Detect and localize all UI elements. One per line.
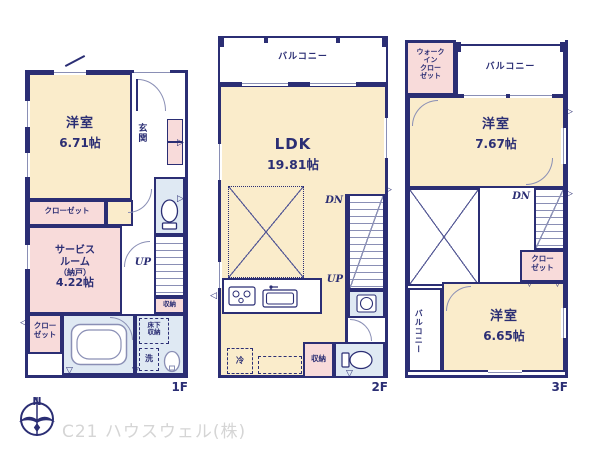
window-2f-balcony-2 — [310, 81, 356, 86]
balcony-3f-post-right — [560, 42, 565, 52]
closet-bottom-left-label: クロー ゼット — [28, 322, 62, 339]
ldk-size: 19.81帖 — [238, 158, 348, 172]
ldk-name: LDK — [238, 136, 348, 153]
toilet-icon-2f — [341, 349, 375, 371]
service-room-l1: サービス — [28, 245, 122, 257]
cupboard-box — [258, 356, 302, 374]
window-2f-balcony-1 — [242, 81, 288, 86]
toilet-door-arc-1f — [128, 189, 152, 213]
window-1f-left-2 — [25, 153, 30, 177]
closet-3f-l2: ゼット — [520, 264, 565, 273]
wic-l3: クロー — [405, 64, 456, 72]
dashed-area-2f — [228, 186, 304, 278]
underfloor-storage-label: 床下 収納 — [139, 322, 169, 337]
wic-l4: ゼット — [405, 72, 456, 80]
balcony-2f-label: バルコニー — [218, 52, 388, 62]
company-name: C21 ハウスウェル(株) — [62, 417, 246, 442]
vent-marker-1f-right-1: ▷ — [177, 139, 184, 148]
entrance-door-arc — [138, 79, 166, 111]
service-room-l2: ルーム — [28, 257, 122, 269]
wic-l2: イン — [405, 56, 456, 64]
closet-3f-label: クロー ゼット — [520, 255, 565, 272]
washbasin-icon-2f — [356, 294, 377, 313]
washing-machine-label: 洗 — [139, 354, 159, 363]
vent-marker-1f-left: ◁ — [20, 319, 27, 328]
window-2f-left-1 — [217, 144, 222, 180]
floor-plan-3f: ウォーク イン クロー ゼット バルコニー 洋室 7.67帖 DN クロー ゼッ… — [405, 40, 568, 378]
vent-marker-2f-right: ▷ — [385, 186, 392, 195]
balcony-tick-1 — [264, 36, 268, 43]
room-western-3f-b-size: 6.65帖 — [454, 330, 554, 344]
window-2f-right — [384, 118, 389, 158]
vent-marker-3f-right-1: ▷ — [566, 108, 573, 117]
void-area — [408, 188, 480, 286]
balcony-3f-left-label: バルコニー — [414, 296, 423, 366]
window-3f-right-1 — [561, 128, 566, 164]
roof-vent-mark — [65, 55, 85, 67]
compass-north-letter: N — [32, 395, 41, 408]
underfloor-l2: 収納 — [139, 329, 169, 336]
balcony-tick-2 — [336, 36, 340, 43]
balcony-post-left — [218, 36, 224, 47]
vent-marker-1f-bottom-1: ▽ — [66, 367, 73, 376]
vent-marker-3f-closet-2: ▽ — [554, 280, 561, 289]
window-3f-bottom — [488, 370, 522, 375]
washbasin-icon — [163, 350, 181, 373]
vent-marker-2f-left: ◁ — [210, 292, 217, 301]
stairs-up-label-1f: UP — [118, 257, 151, 268]
stairs-1f — [154, 235, 185, 297]
stairs-dn-label-2f: DN — [315, 195, 343, 206]
closet-bl-l2: ゼット — [28, 331, 62, 340]
stove-icon — [228, 286, 256, 306]
floorplan-image: 洋室 6.71帖 玄関 クローゼット サービス ルーム （納戸） 4.22帖 ク… — [0, 0, 600, 450]
floor-label-2f: 2F — [356, 380, 388, 394]
stairs-dn-label-3f: DN — [502, 191, 530, 202]
balcony-3f-post-left — [456, 42, 461, 52]
window-3f-right-2 — [561, 308, 566, 338]
room-western-1f-name: 洋室 — [28, 117, 132, 132]
entrance-label: 玄関 — [136, 113, 146, 153]
compass-north-icon: N — [14, 392, 60, 442]
service-room-label: サービス ルーム （納戸） 4.22帖 — [28, 245, 122, 290]
room-western-3f-b-name: 洋室 — [454, 310, 554, 325]
vent-marker-1f-bottom-2: ▽ — [132, 367, 139, 376]
balcony-3f-top-label: バルコニー — [456, 62, 565, 72]
fridge-label: 冷 — [227, 356, 253, 365]
floor-plan-2f: バルコニー LDK 19.81帖 冷 収納 — [218, 36, 388, 378]
stairs-2f — [348, 194, 385, 290]
window-3f-balcony-2 — [510, 93, 552, 98]
window-2f-left-2 — [217, 262, 222, 288]
wic-l1: ウォーク — [405, 48, 456, 56]
stairs-3f — [534, 188, 565, 250]
vent-marker-2f-bottom: ▽ — [346, 370, 353, 379]
kitchen-sink-icon — [262, 284, 298, 308]
window-1f-top — [54, 70, 86, 75]
storage-label-1f: 収納 — [154, 301, 185, 308]
vent-marker-3f-right-2: ▷ — [566, 190, 573, 199]
window-1f-left-3 — [25, 245, 30, 269]
window-3f-balcony-1 — [464, 93, 506, 98]
balcony-post-right — [382, 36, 388, 47]
stairs-up-label-2f: UP — [315, 274, 343, 285]
floor-label-3f: 3F — [536, 380, 568, 394]
room-western-3f-a-size: 7.67帖 — [446, 138, 546, 152]
floor-label-1f: 1F — [156, 380, 188, 394]
window-1f-left-1 — [25, 101, 30, 127]
storage-label-2f: 収納 — [303, 355, 334, 364]
room-western-1f-size: 6.71帖 — [28, 137, 132, 151]
vent-marker-3f-closet-1: ▽ — [526, 280, 533, 289]
vent-marker-1f-right-2: ▷ — [177, 195, 184, 204]
service-room-l4: 4.22帖 — [28, 277, 122, 290]
floor-plan-1f: 洋室 6.71帖 玄関 クローゼット サービス ルーム （納戸） 4.22帖 ク… — [25, 70, 188, 378]
room-western-3f-a-name: 洋室 — [446, 118, 546, 133]
walk-in-closet-label: ウォーク イン クロー ゼット — [405, 48, 456, 80]
entrance-door-opening — [134, 70, 170, 75]
closet-top-1f-label: クローゼット — [28, 207, 106, 216]
